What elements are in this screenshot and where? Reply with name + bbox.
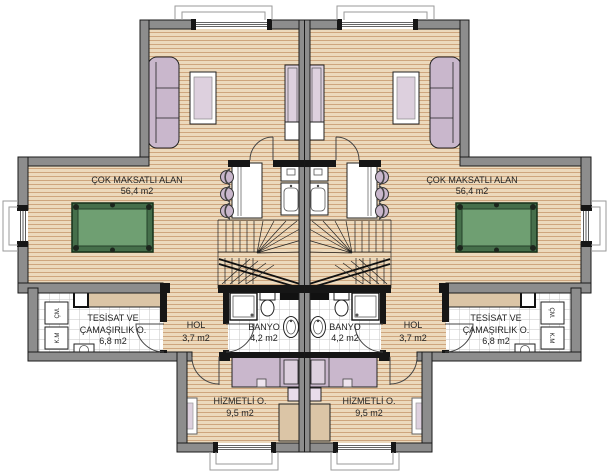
room-label-hall-right: HOL <box>404 320 423 330</box>
room-label-bath-left: BANYO <box>248 322 280 332</box>
room-label-maid-right: HİZMETLİ O. <box>342 396 395 406</box>
floor-plan-page: ÇOK MAKSATLI ALAN 56,4 m2 TESİSAT VE ÇAM… <box>0 0 611 475</box>
floor-plan-drawing: ÇOK MAKSATLI ALAN 56,4 m2 TESİSAT VE ÇAM… <box>0 0 611 475</box>
area-label-bath-left: 4,2 m2 <box>250 333 278 343</box>
appliance-label-dryer-left: K.M <box>55 333 61 344</box>
room-label-utility-right-line1: TESİSAT VE <box>470 313 521 323</box>
room-label-multi-purpose-right: ÇOK MAKSATLI ALAN <box>426 175 517 185</box>
area-label-multi-purpose-right: 56,4 m2 <box>456 186 489 196</box>
appliance-label-washer-right: ÇM. <box>548 308 554 319</box>
area-label-utility-left: 6,8 m2 <box>99 336 127 346</box>
room-label-maid-left: HİZMETLİ O. <box>213 396 266 406</box>
area-label-hall-right: 3,7 m2 <box>399 333 427 343</box>
appliance-label-washer-left: ÇM. <box>55 307 61 318</box>
area-label-bath-right: 4,2 m2 <box>331 333 359 343</box>
room-label-multi-purpose-left: ÇOK MAKSATLI ALAN <box>91 175 182 185</box>
room-label-utility-left-line2: ÇAMAŞIRLIK O. <box>80 325 147 335</box>
room-label-hall-left: HOL <box>187 320 206 330</box>
area-label-multi-purpose-left: 56,4 m2 <box>121 186 154 196</box>
appliance-label-dryer-right: K.M <box>548 333 554 344</box>
room-label-utility-right-line2: ÇAMAŞIRLIK O. <box>463 325 530 335</box>
area-label-maid-left: 9,5 m2 <box>226 408 254 418</box>
room-label-utility-left-line1: TESİSAT VE <box>87 313 138 323</box>
room-label-bath-right: BANYO <box>329 322 361 332</box>
area-label-hall-left: 3,7 m2 <box>182 333 210 343</box>
area-label-maid-right: 9,5 m2 <box>355 408 383 418</box>
area-label-utility-right: 6,8 m2 <box>482 336 510 346</box>
